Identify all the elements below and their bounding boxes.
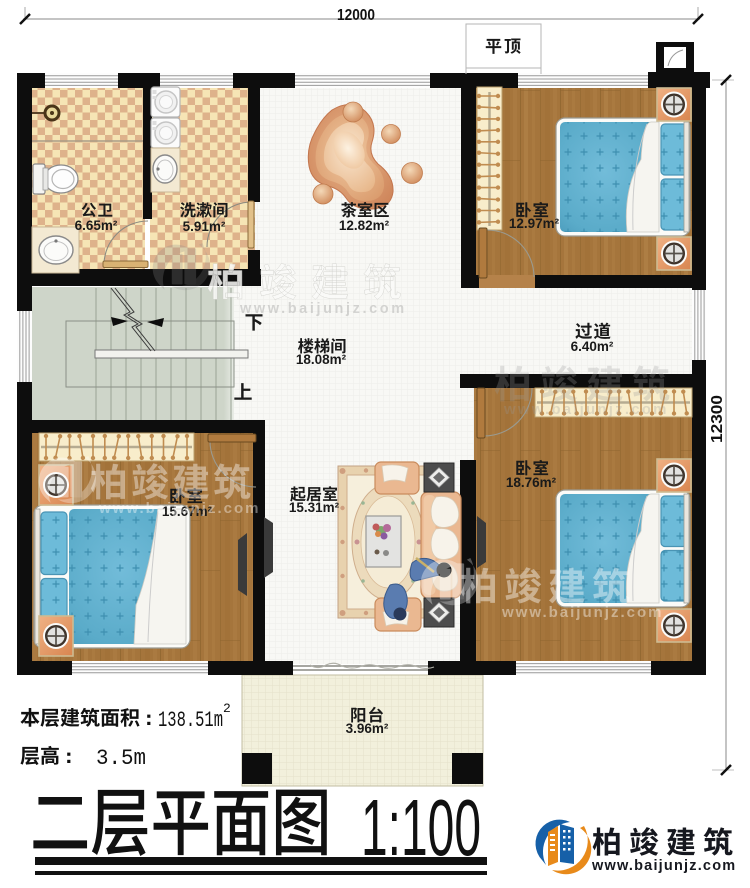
svg-text:12000: 12000 xyxy=(337,7,375,24)
svg-text:www.baijunjz.com: www.baijunjz.com xyxy=(501,604,663,621)
svg-text:12.82m²: 12.82m² xyxy=(339,218,390,233)
svg-text:15.31m²: 15.31m² xyxy=(289,500,340,515)
svg-text:www.baijunjz.com: www.baijunjz.com xyxy=(503,401,669,418)
svg-text:18.76m²: 18.76m² xyxy=(506,475,557,490)
svg-text:2: 2 xyxy=(223,701,231,716)
svg-text:138.51m: 138.51m xyxy=(158,708,223,733)
svg-text:www.baijunjz.com: www.baijunjz.com xyxy=(98,500,260,517)
svg-text:3.96m²: 3.96m² xyxy=(346,721,389,736)
svg-text:3.5m: 3.5m xyxy=(96,746,146,771)
svg-text:12300: 12300 xyxy=(709,395,726,443)
svg-text:6.40m²: 6.40m² xyxy=(571,339,614,354)
svg-text:www.baijunjz.com: www.baijunjz.com xyxy=(239,301,407,317)
svg-text:www.baijunjz.com: www.baijunjz.com xyxy=(591,858,736,874)
svg-text:6.65m²: 6.65m² xyxy=(75,218,118,233)
svg-text:5.91m²: 5.91m² xyxy=(183,219,226,234)
svg-text:18.08m²: 18.08m² xyxy=(296,352,347,367)
svg-text:12.97m²: 12.97m² xyxy=(509,216,560,231)
